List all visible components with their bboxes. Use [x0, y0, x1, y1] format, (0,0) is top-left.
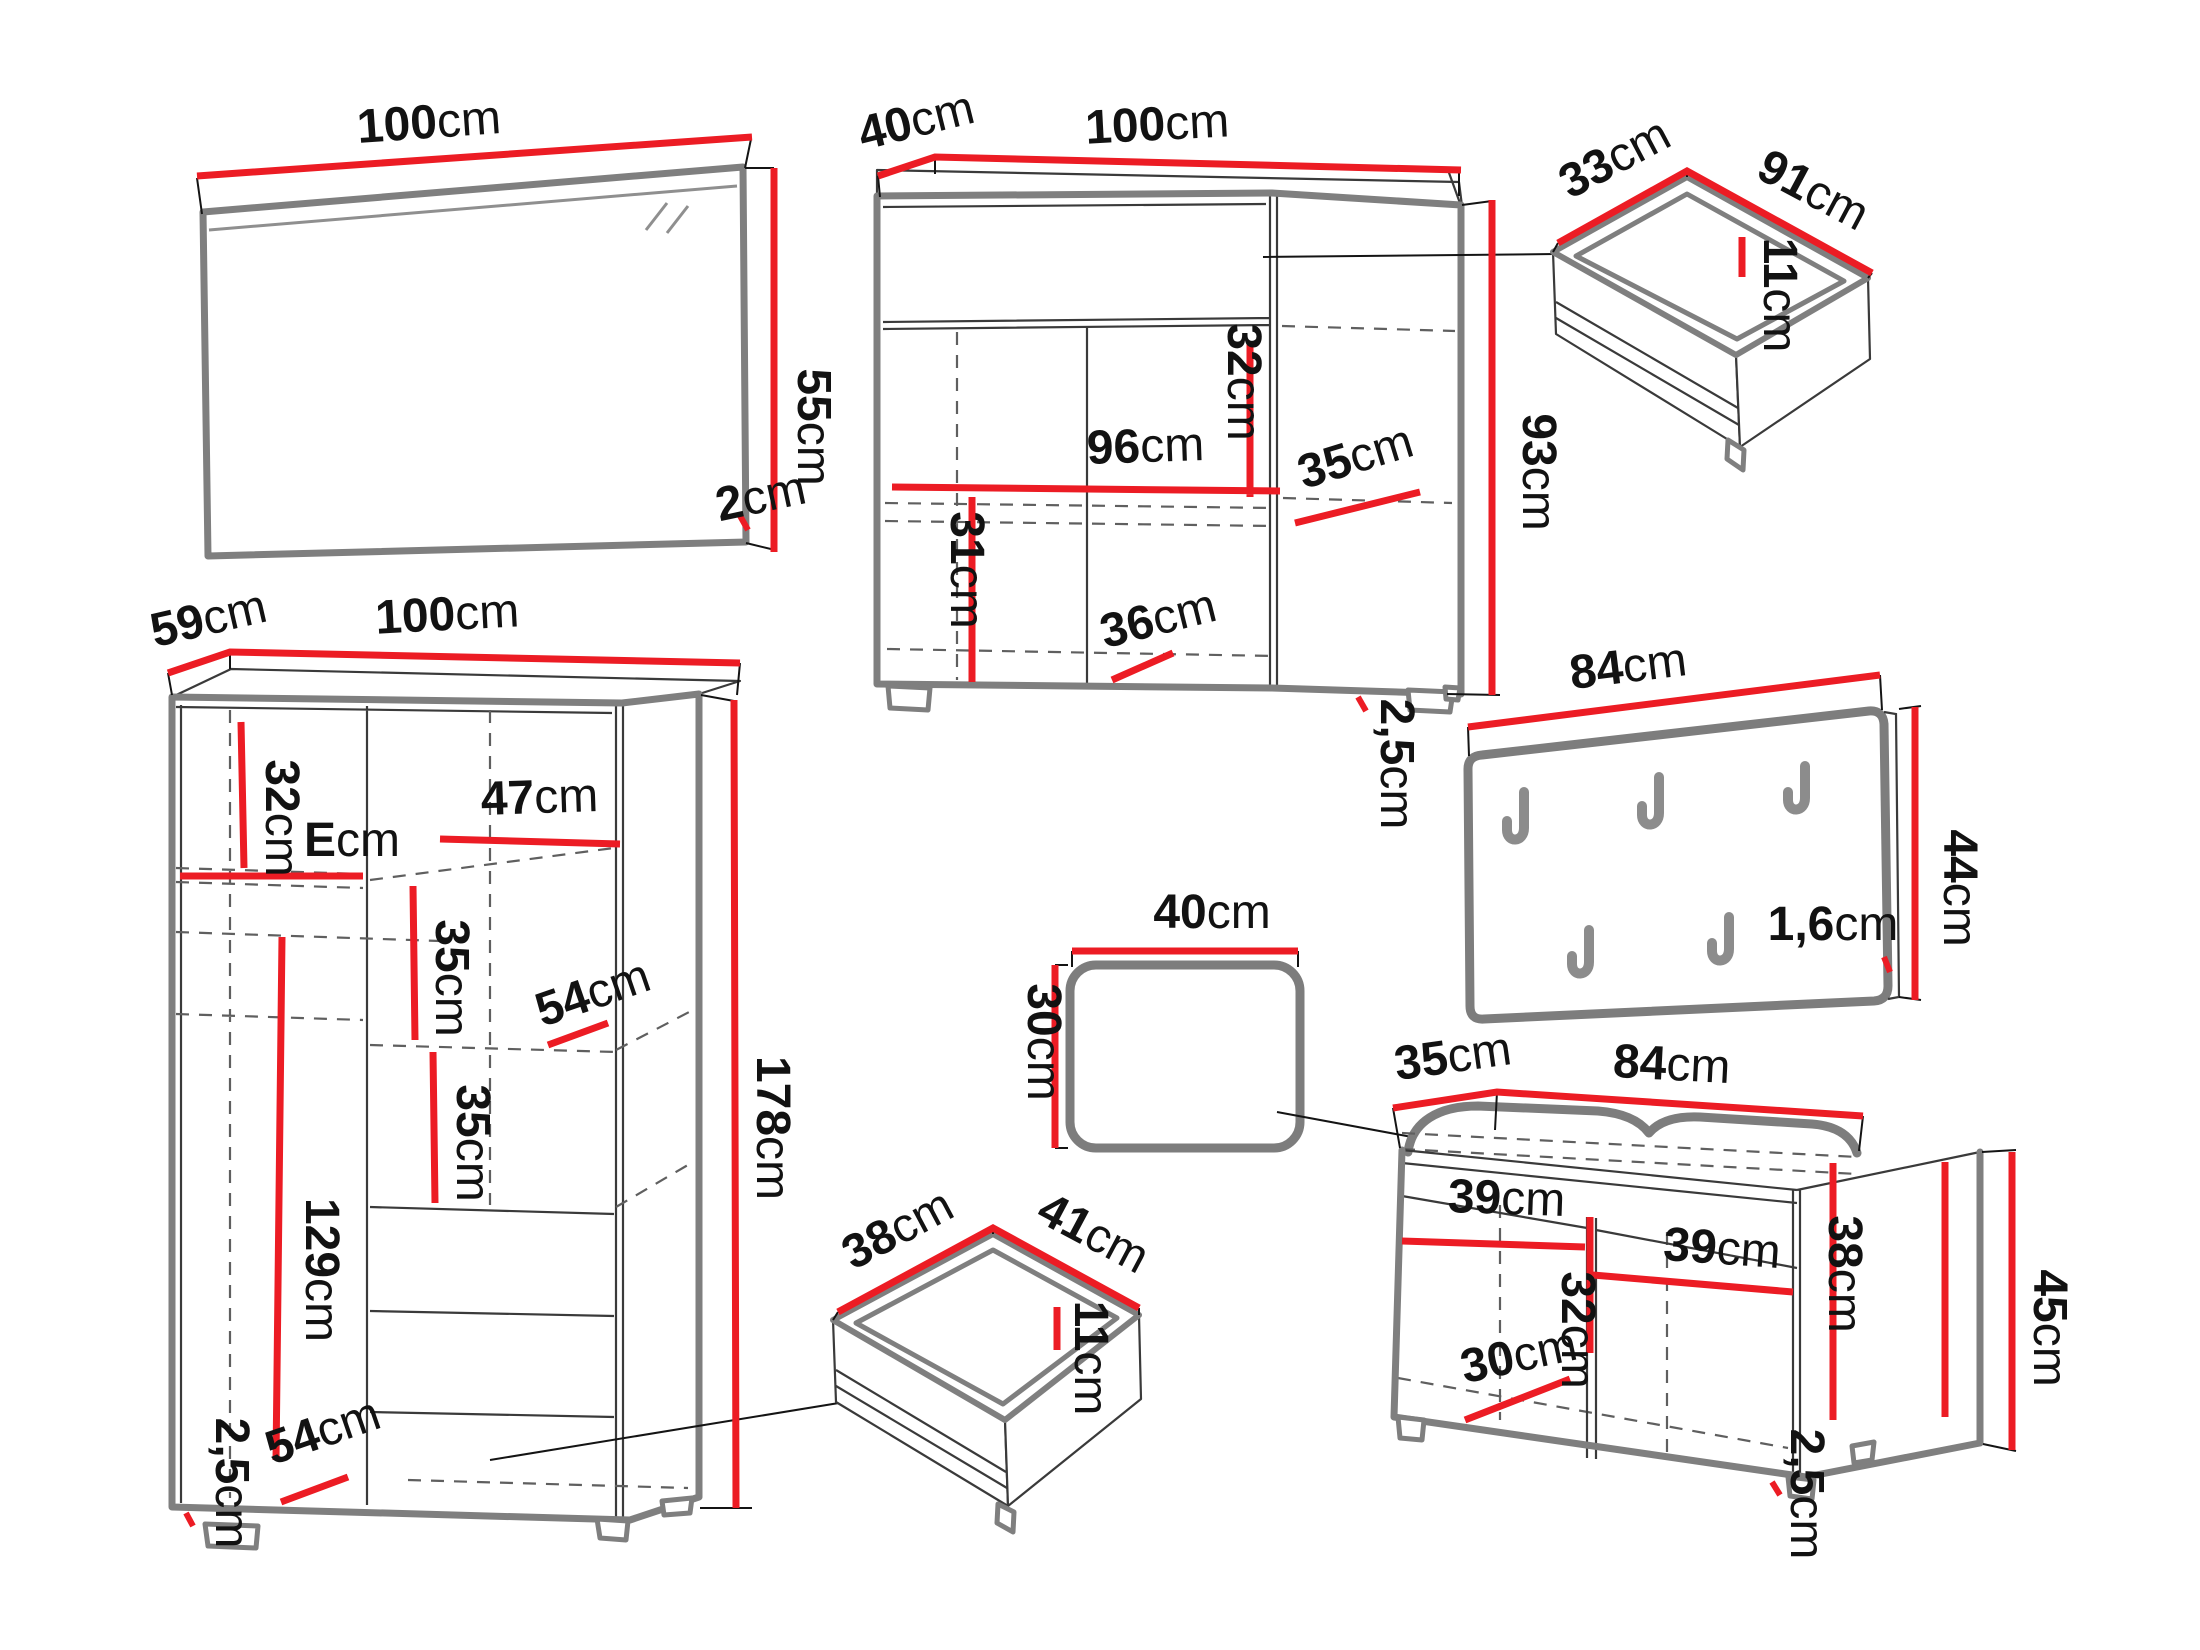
- dim-wardrobe-plinth: 2,5cm: [205, 1418, 258, 1549]
- dim-wardrobe-left-width: Ecm: [304, 814, 400, 867]
- bench-plinth-tick: [1772, 1482, 1780, 1495]
- wardrobe-diagram: 59cm 100cm 32cm Ecm 47cm 35cm 54cm 35cm …: [145, 580, 845, 1548]
- dim-sideboard-inner-width: 96cm: [1086, 418, 1205, 475]
- coat-rack-panel: [1468, 711, 1888, 1019]
- dim-bench-right-inner-width: 39cm: [1662, 1218, 1783, 1279]
- dim-wardrobe-shelf-gap-lower: 35cm: [446, 1084, 499, 1201]
- wardrobe-leg-back: [662, 1498, 692, 1515]
- dim-sideboard-bottom-inner-height: 31cm: [940, 511, 993, 628]
- bench-diagram: 35cm 84cm 39cm 39cm 32cm 30cm 38cm 45cm …: [1391, 1022, 2076, 1559]
- dim-coat-rack-width: 84cm: [1567, 633, 1690, 700]
- dim-bench-width: 84cm: [1612, 1035, 1732, 1094]
- dim-coat-rack-thickness: 1,6cm: [1768, 898, 1899, 951]
- wardrobe-leg-right: [597, 1519, 628, 1540]
- sideboard-diagram: 40cm 100cm 96cm 32cm 31cm 36cm 35cm 93cm…: [853, 81, 1565, 829]
- dim-bench-side-inner-height: 38cm: [1818, 1215, 1871, 1332]
- drawer-bottom-foot: [997, 1504, 1014, 1532]
- bench-leg-left: [1398, 1417, 1424, 1440]
- dim-wardrobe-shelf-gap-upper: 35cm: [425, 919, 478, 1036]
- bench-leg-back: [1852, 1442, 1874, 1463]
- dim-bench-plinth: 2,5cm: [1780, 1429, 1833, 1560]
- stool-diagram: 40cm 30cm: [1017, 886, 1428, 1148]
- dim-mirror-width: 100cm: [355, 91, 502, 154]
- dim-bench-height: 45cm: [2023, 1269, 2076, 1386]
- dim-stool-height: 30cm: [1017, 983, 1070, 1100]
- dim-wardrobe-hanging-height: 129cm: [295, 1198, 348, 1342]
- dim-sideboard-height: 93cm: [1512, 413, 1565, 530]
- dim-bench-left-inner-width: 39cm: [1447, 1170, 1566, 1227]
- mirror-body: [203, 167, 746, 556]
- wardrobe-side: [622, 694, 699, 1520]
- dim-wardrobe-height: 178cm: [746, 1056, 799, 1200]
- furniture-dimensions-diagram: 100cm 55cm 2cm 40cm 100cm 96cm 32cm 31cm…: [0, 0, 2200, 1650]
- sideboard-plinth-tick: [1358, 697, 1366, 711]
- sideboard-leg-left: [888, 686, 930, 710]
- dim-sideboard-plinth: 2,5cm: [1370, 699, 1423, 830]
- dim-wardrobe-width: 100cm: [374, 584, 521, 644]
- drawer-top-diagram: 33cm 91cm 11cm: [1550, 107, 1877, 470]
- coat-rack-diagram: 84cm 44cm 1,6cm: [1468, 633, 1986, 1019]
- dim-drawer-top-height: 11cm: [1753, 238, 1806, 353]
- dim-drawer-bottom-height: 11cm: [1064, 1301, 1117, 1416]
- stool-body: [1070, 965, 1300, 1148]
- dim-coat-rack-height: 44cm: [1933, 829, 1986, 946]
- dim-sideboard-depth: 40cm: [853, 81, 980, 161]
- dim-wardrobe-top-shelf-height: 32cm: [255, 759, 308, 876]
- drawer-bottom-diagram: 38cm 41cm 11cm: [833, 1178, 1158, 1532]
- dim-sideboard-top-inner-height: 32cm: [1217, 323, 1270, 440]
- dim-sideboard-width: 100cm: [1084, 94, 1231, 154]
- wardrobe-plinth-tick: [186, 1513, 193, 1526]
- dim-bench-depth: 35cm: [1391, 1022, 1515, 1091]
- dim-wardrobe-depth: 59cm: [145, 580, 271, 658]
- dim-wardrobe-right-width: 47cm: [480, 769, 599, 826]
- diagram-canvas: 100cm 55cm 2cm 40cm 100cm 96cm 32cm 31cm…: [0, 0, 2200, 1650]
- mirror-diagram: 100cm 55cm 2cm: [197, 91, 840, 556]
- dim-stool-width: 40cm: [1153, 886, 1270, 939]
